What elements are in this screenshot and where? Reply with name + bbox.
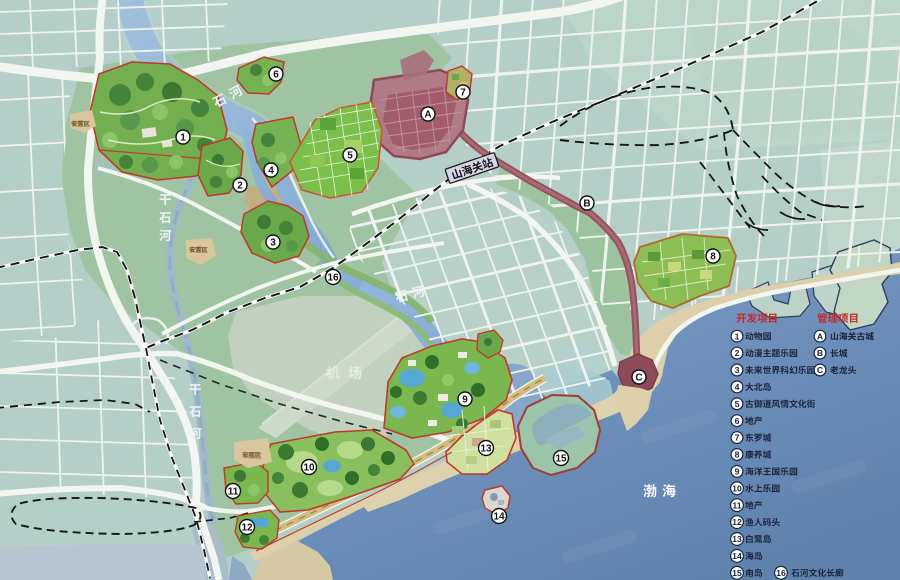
svg-text:8: 8 [735, 450, 740, 460]
svg-text:11: 11 [228, 487, 239, 498]
svg-text:7: 7 [735, 433, 740, 443]
svg-text:11: 11 [732, 500, 741, 510]
svg-text:3: 3 [270, 238, 276, 249]
svg-text:2: 2 [237, 181, 243, 192]
svg-text:14: 14 [493, 512, 505, 523]
svg-text:B: B [583, 199, 590, 210]
svg-text:5: 5 [735, 399, 740, 409]
svg-text:12: 12 [732, 517, 742, 527]
svg-text:C: C [635, 373, 642, 384]
svg-text:14: 14 [732, 551, 742, 561]
svg-text:10: 10 [303, 463, 315, 474]
svg-text:13: 13 [732, 534, 742, 544]
svg-text:3: 3 [735, 365, 740, 375]
svg-text:A: A [424, 110, 431, 121]
svg-text:5: 5 [347, 151, 353, 162]
svg-text:16: 16 [327, 273, 339, 284]
svg-text:4: 4 [735, 382, 740, 392]
svg-text:13: 13 [480, 444, 492, 455]
svg-text:A: A [817, 331, 824, 341]
svg-text:C: C [817, 365, 824, 375]
svg-text:7: 7 [460, 88, 466, 99]
svg-text:1: 1 [180, 133, 186, 144]
svg-text:16: 16 [776, 568, 786, 578]
svg-text:4: 4 [268, 166, 274, 177]
svg-text:12: 12 [241, 523, 253, 534]
svg-text:1: 1 [735, 331, 740, 341]
svg-text:B: B [817, 348, 823, 358]
svg-text:6: 6 [273, 70, 279, 81]
svg-text:10: 10 [732, 483, 742, 493]
svg-text:9: 9 [462, 395, 468, 406]
svg-text:15: 15 [555, 454, 567, 465]
svg-text:15: 15 [732, 568, 742, 578]
svg-text:9: 9 [735, 467, 740, 477]
svg-text:2: 2 [735, 348, 740, 358]
svg-text:8: 8 [710, 252, 716, 263]
svg-text:6: 6 [735, 416, 740, 426]
